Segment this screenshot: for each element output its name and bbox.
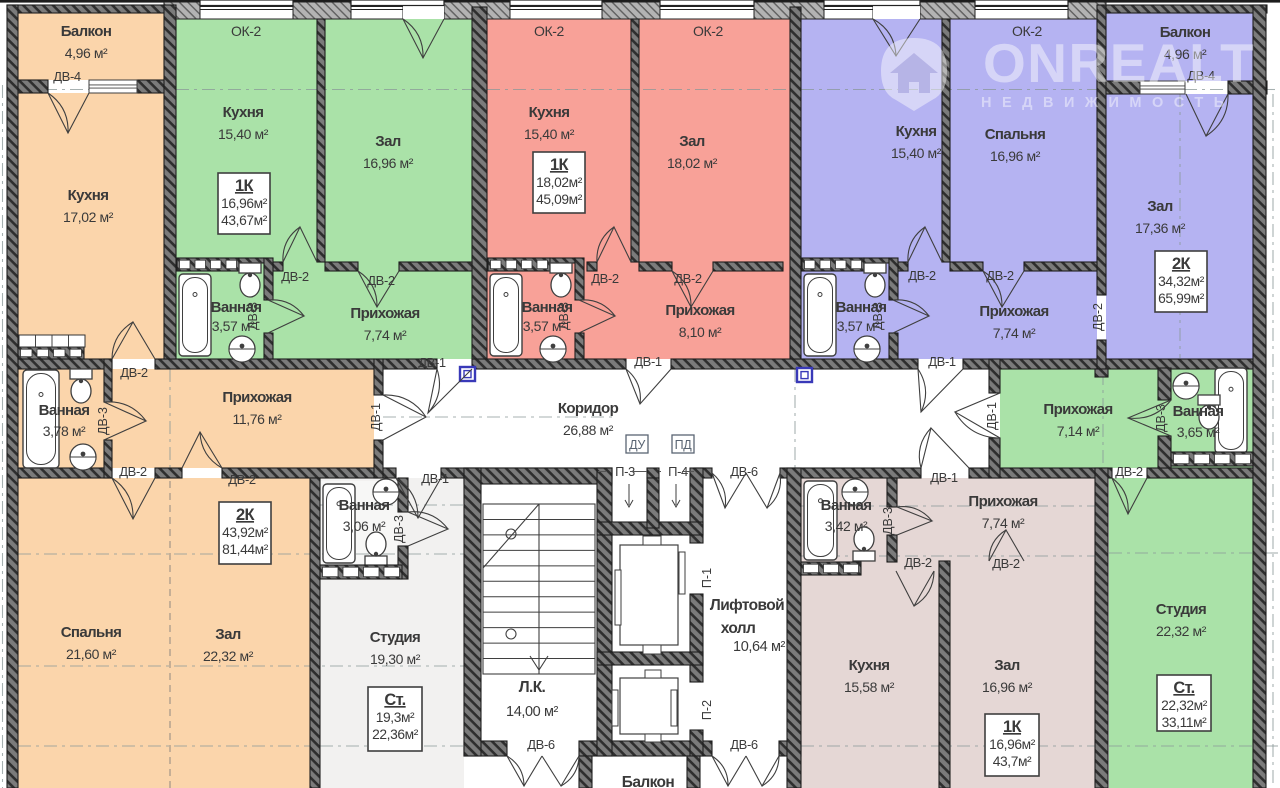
svg-text:ДВ-1: ДВ-1 <box>930 470 958 485</box>
svg-text:7,74 м²: 7,74 м² <box>982 515 1025 531</box>
svg-text:Ванная: Ванная <box>339 497 390 514</box>
svg-text:ДВ-4: ДВ-4 <box>53 69 81 84</box>
svg-text:3,57 м²: 3,57 м² <box>212 318 255 334</box>
svg-text:Балкон: Балкон <box>622 774 675 788</box>
svg-text:ДВ-2: ДВ-2 <box>674 271 702 286</box>
svg-text:Прихожая: Прихожая <box>979 303 1048 320</box>
svg-text:ДВ-1: ДВ-1 <box>634 354 662 369</box>
svg-text:Ванная: Ванная <box>211 299 262 316</box>
svg-text:3,42 м²: 3,42 м² <box>825 518 868 534</box>
svg-text:2К: 2К <box>236 506 256 524</box>
svg-text:ДВ-2: ДВ-2 <box>1091 303 1105 331</box>
svg-text:ДВ-2: ДВ-2 <box>281 269 309 284</box>
svg-text:ДВ-1: ДВ-1 <box>418 355 446 370</box>
svg-text:Прихожая: Прихожая <box>222 389 291 406</box>
svg-text:17,36 м²: 17,36 м² <box>1135 220 1186 236</box>
svg-text:18,02м²: 18,02м² <box>536 175 583 190</box>
svg-text:16,96м²: 16,96м² <box>989 737 1036 752</box>
svg-text:22,36м²: 22,36м² <box>372 727 419 742</box>
svg-text:45,09м²: 45,09м² <box>536 192 583 207</box>
svg-text:Кухня: Кухня <box>68 187 109 204</box>
svg-text:4,96 м²: 4,96 м² <box>65 45 108 61</box>
svg-text:ДВ-1: ДВ-1 <box>928 354 956 369</box>
svg-text:ДВ-1: ДВ-1 <box>421 471 449 486</box>
svg-text:Кухня: Кухня <box>223 104 264 121</box>
svg-text:ДВ-2: ДВ-2 <box>591 271 619 286</box>
svg-text:ДВ-2: ДВ-2 <box>908 268 936 283</box>
svg-text:ДУ: ДУ <box>629 438 645 452</box>
svg-text:холл: холл <box>721 620 756 637</box>
svg-text:ДВ-3: ДВ-3 <box>392 515 406 543</box>
svg-text:3,57 м²: 3,57 м² <box>837 318 880 334</box>
svg-text:Зал: Зал <box>215 626 241 643</box>
svg-text:43,7м²: 43,7м² <box>993 754 1032 769</box>
svg-text:Ванная: Ванная <box>1173 403 1224 420</box>
svg-text:22,32 м²: 22,32 м² <box>1156 623 1207 639</box>
svg-text:1К: 1К <box>235 177 255 195</box>
svg-text:ONREALT: ONREALT <box>983 32 1255 94</box>
svg-text:ДВ-6: ДВ-6 <box>527 737 555 752</box>
svg-text:ДВ-2: ДВ-2 <box>228 472 256 487</box>
svg-text:3,06 м²: 3,06 м² <box>343 518 386 534</box>
svg-text:16,96 м²: 16,96 м² <box>982 679 1033 695</box>
svg-text:Лифтовой: Лифтовой <box>710 597 784 614</box>
svg-text:НЕДВИЖИМОСТЬ: НЕДВИЖИМОСТЬ <box>981 95 1235 111</box>
svg-text:Ванная: Ванная <box>836 299 887 316</box>
svg-text:ДВ-2: ДВ-2 <box>367 273 395 288</box>
svg-text:Коридор: Коридор <box>558 400 619 417</box>
svg-text:10,64 м²: 10,64 м² <box>733 639 785 655</box>
svg-text:16,96 м²: 16,96 м² <box>990 148 1041 164</box>
svg-text:15,40 м²: 15,40 м² <box>891 145 942 161</box>
svg-text:Прихожая: Прихожая <box>968 493 1037 510</box>
svg-text:8,10 м²: 8,10 м² <box>679 324 722 340</box>
svg-text:22,32 м²: 22,32 м² <box>203 648 254 664</box>
svg-text:Зал: Зал <box>375 133 401 150</box>
svg-text:7,74 м²: 7,74 м² <box>993 325 1036 341</box>
svg-text:19,30 м²: 19,30 м² <box>370 651 421 667</box>
svg-text:15,40 м²: 15,40 м² <box>524 126 575 142</box>
svg-text:21,60 м²: 21,60 м² <box>66 646 117 662</box>
svg-text:Прихожая: Прихожая <box>1043 401 1112 418</box>
svg-text:3,65 м²: 3,65 м² <box>1177 424 1220 440</box>
svg-text:3,78 м²: 3,78 м² <box>43 423 86 439</box>
svg-text:17,02 м²: 17,02 м² <box>63 209 114 225</box>
svg-text:ДВ-2: ДВ-2 <box>119 464 147 479</box>
svg-text:26,88 м²: 26,88 м² <box>563 422 614 438</box>
svg-text:Зал: Зал <box>679 133 705 150</box>
svg-text:15,40 м²: 15,40 м² <box>218 126 269 142</box>
svg-text:Кухня: Кухня <box>529 104 570 121</box>
svg-text:7,74 м²: 7,74 м² <box>364 327 407 343</box>
svg-text:ДВ-3: ДВ-3 <box>881 507 895 535</box>
svg-text:Спальня: Спальня <box>61 624 122 641</box>
svg-text:ДВ-1: ДВ-1 <box>985 402 999 430</box>
svg-text:ОК-2: ОК-2 <box>231 23 262 39</box>
svg-text:7,14 м²: 7,14 м² <box>1057 423 1100 439</box>
svg-text:Прихожая: Прихожая <box>665 302 734 319</box>
svg-text:81,44м²: 81,44м² <box>222 542 269 557</box>
svg-text:Кухня: Кухня <box>849 657 890 674</box>
svg-text:ДВ-1: ДВ-1 <box>369 403 383 431</box>
svg-text:11,76 м²: 11,76 м² <box>233 411 283 427</box>
svg-text:ДВ-2: ДВ-2 <box>120 365 148 380</box>
svg-text:Балкон: Балкон <box>61 23 112 40</box>
svg-text:Ст.: Ст. <box>1173 679 1194 697</box>
svg-text:Прихожая: Прихожая <box>350 305 419 322</box>
svg-text:15,58 м²: 15,58 м² <box>844 679 895 695</box>
svg-text:3,57 м²: 3,57 м² <box>523 318 566 334</box>
svg-text:Кухня: Кухня <box>896 123 937 140</box>
svg-text:ДВ-2: ДВ-2 <box>1115 464 1143 479</box>
svg-text:ДВ-2: ДВ-2 <box>986 268 1014 283</box>
svg-text:16,96м²: 16,96м² <box>221 196 268 211</box>
svg-text:Ст.: Ст. <box>384 691 405 709</box>
svg-text:ДВ-6: ДВ-6 <box>730 737 758 752</box>
svg-text:1К: 1К <box>550 156 570 174</box>
svg-text:Студия: Студия <box>370 629 420 646</box>
svg-text:16,96 м²: 16,96 м² <box>363 155 414 171</box>
svg-text:ДВ-3: ДВ-3 <box>96 407 110 435</box>
svg-text:Ванная: Ванная <box>522 299 573 316</box>
svg-text:ПД: ПД <box>675 438 693 452</box>
svg-text:Зал: Зал <box>994 657 1020 674</box>
svg-text:ДВ-2: ДВ-2 <box>904 555 932 570</box>
svg-text:Спальня: Спальня <box>985 126 1046 143</box>
svg-text:43,92м²: 43,92м² <box>222 525 269 540</box>
svg-text:П-2: П-2 <box>700 700 714 720</box>
svg-text:Студия: Студия <box>1156 601 1206 618</box>
svg-text:Ванная: Ванная <box>821 497 872 514</box>
svg-text:Л.К.: Л.К. <box>519 679 546 696</box>
svg-text:2К: 2К <box>1172 255 1192 273</box>
svg-text:14,00 м²: 14,00 м² <box>506 704 558 720</box>
svg-text:33,11м²: 33,11м² <box>1162 715 1208 730</box>
svg-text:43,67м²: 43,67м² <box>221 213 268 228</box>
svg-text:ОК-2: ОК-2 <box>534 23 565 39</box>
svg-text:П-1: П-1 <box>700 568 714 588</box>
svg-text:19,3м²: 19,3м² <box>376 710 415 725</box>
svg-text:ДВ-2: ДВ-2 <box>992 556 1020 571</box>
svg-text:ОК-2: ОК-2 <box>693 23 724 39</box>
svg-text:Зал: Зал <box>1147 198 1173 215</box>
svg-text:22,32м²: 22,32м² <box>1161 698 1208 713</box>
svg-text:65,99м²: 65,99м² <box>1158 291 1205 306</box>
svg-text:ДВ-3: ДВ-3 <box>1154 404 1168 432</box>
svg-text:Ванная: Ванная <box>39 402 90 419</box>
svg-text:1К: 1К <box>1003 718 1023 736</box>
svg-text:18,02 м²: 18,02 м² <box>667 155 718 171</box>
svg-text:34,32м²: 34,32м² <box>1158 274 1205 289</box>
